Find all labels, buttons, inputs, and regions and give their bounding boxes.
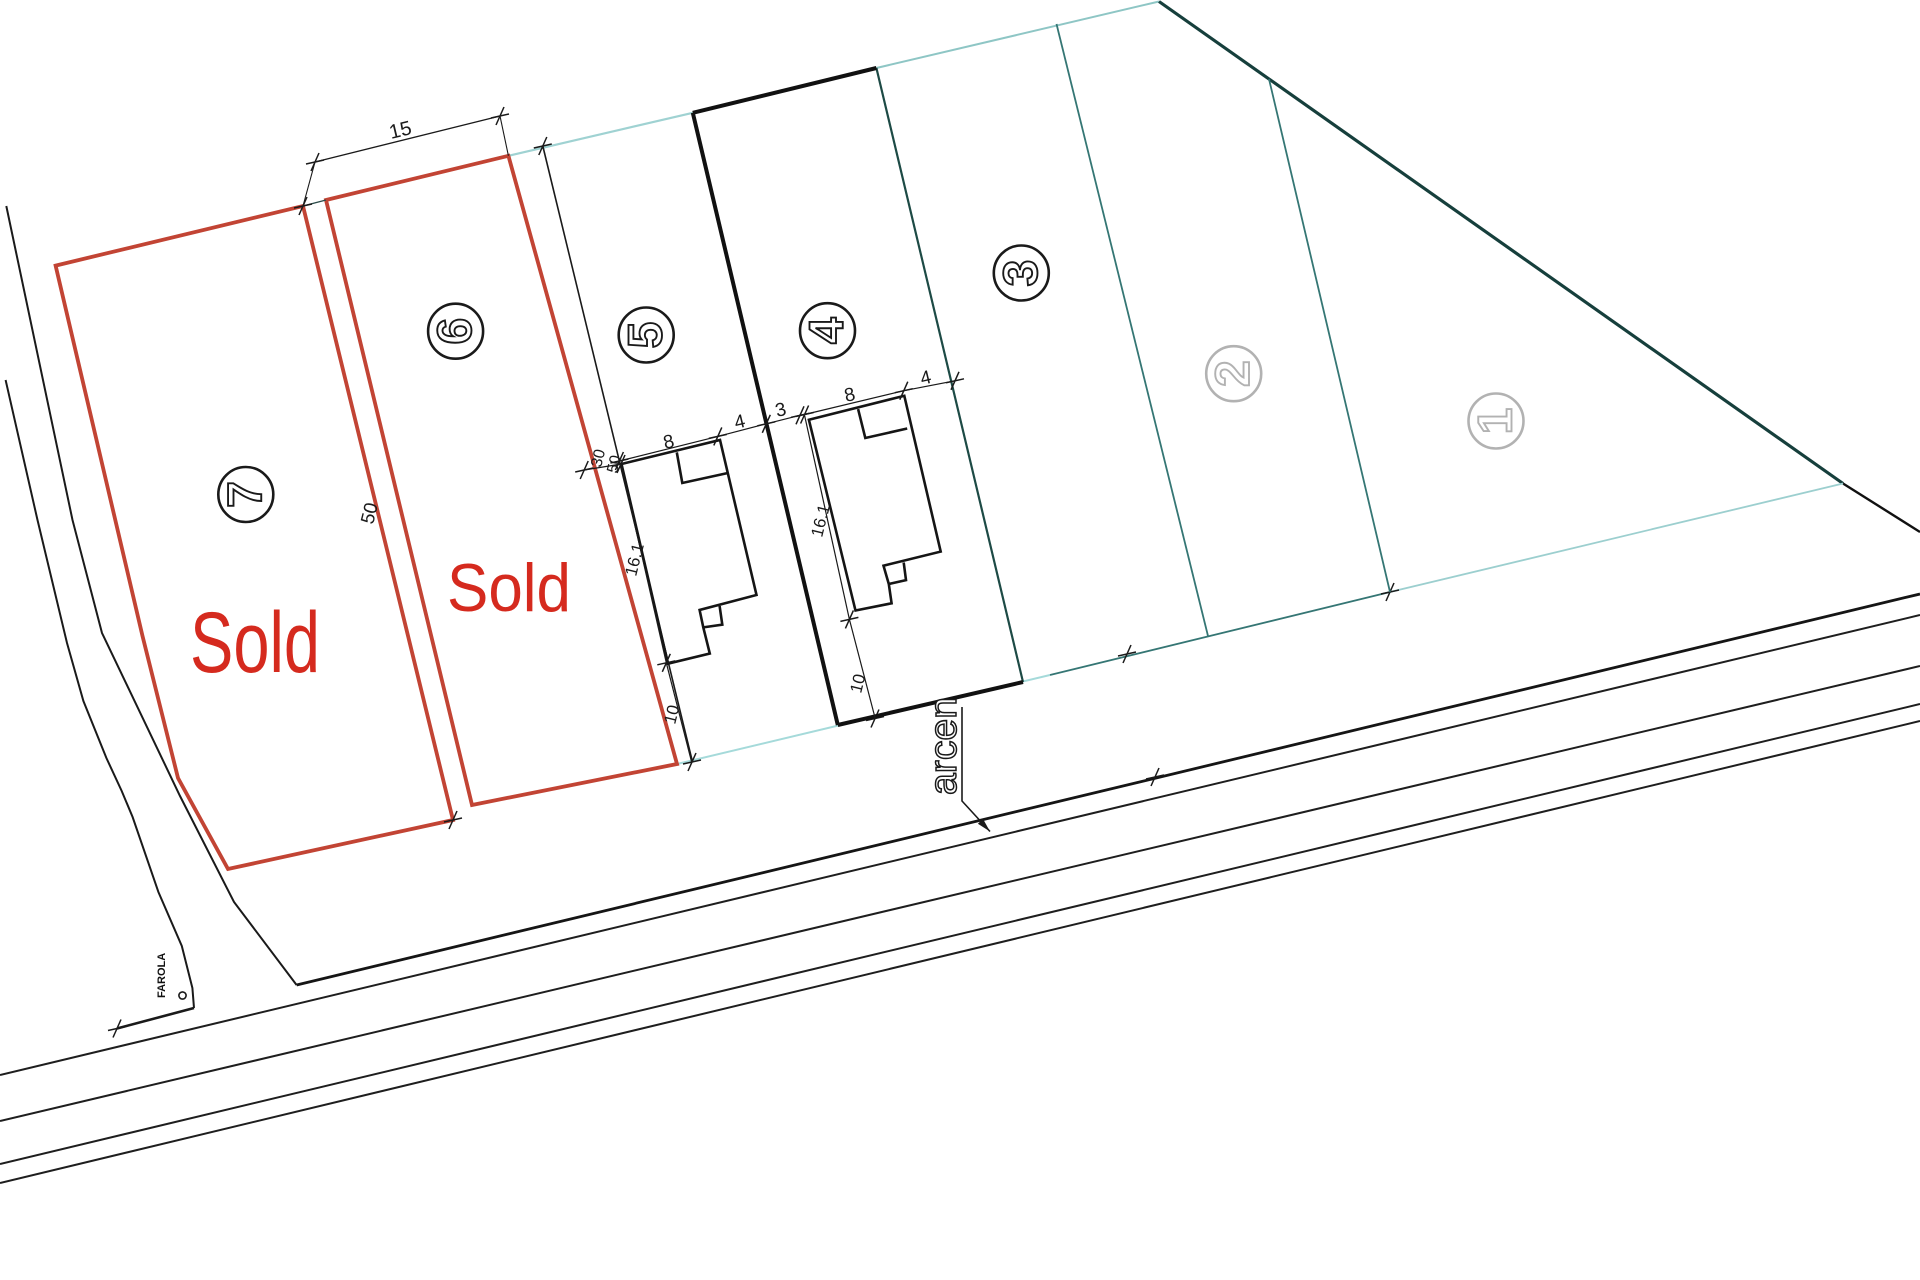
svg-text:3: 3	[995, 260, 1048, 287]
svg-text:6: 6	[429, 318, 482, 345]
svg-text:1: 1	[1470, 408, 1523, 435]
svg-text:arcen: arcen	[923, 697, 965, 795]
svg-text:5: 5	[620, 322, 673, 349]
svg-text:15: 15	[387, 117, 414, 144]
svg-text:10: 10	[846, 672, 869, 695]
svg-text:10: 10	[660, 703, 683, 726]
svg-text:16.1: 16.1	[621, 541, 647, 578]
svg-text:Sold: Sold	[447, 550, 571, 626]
svg-text:2: 2	[1207, 360, 1260, 387]
svg-text:3: 3	[773, 399, 788, 422]
svg-text:7: 7	[219, 481, 272, 508]
svg-text:8: 8	[842, 384, 857, 407]
svg-text:4: 4	[918, 367, 934, 390]
svg-text:4: 4	[801, 317, 854, 344]
svg-text:Sold: Sold	[190, 595, 320, 691]
svg-text:4: 4	[732, 411, 748, 434]
svg-text:FAROLA: FAROLA	[156, 953, 168, 998]
